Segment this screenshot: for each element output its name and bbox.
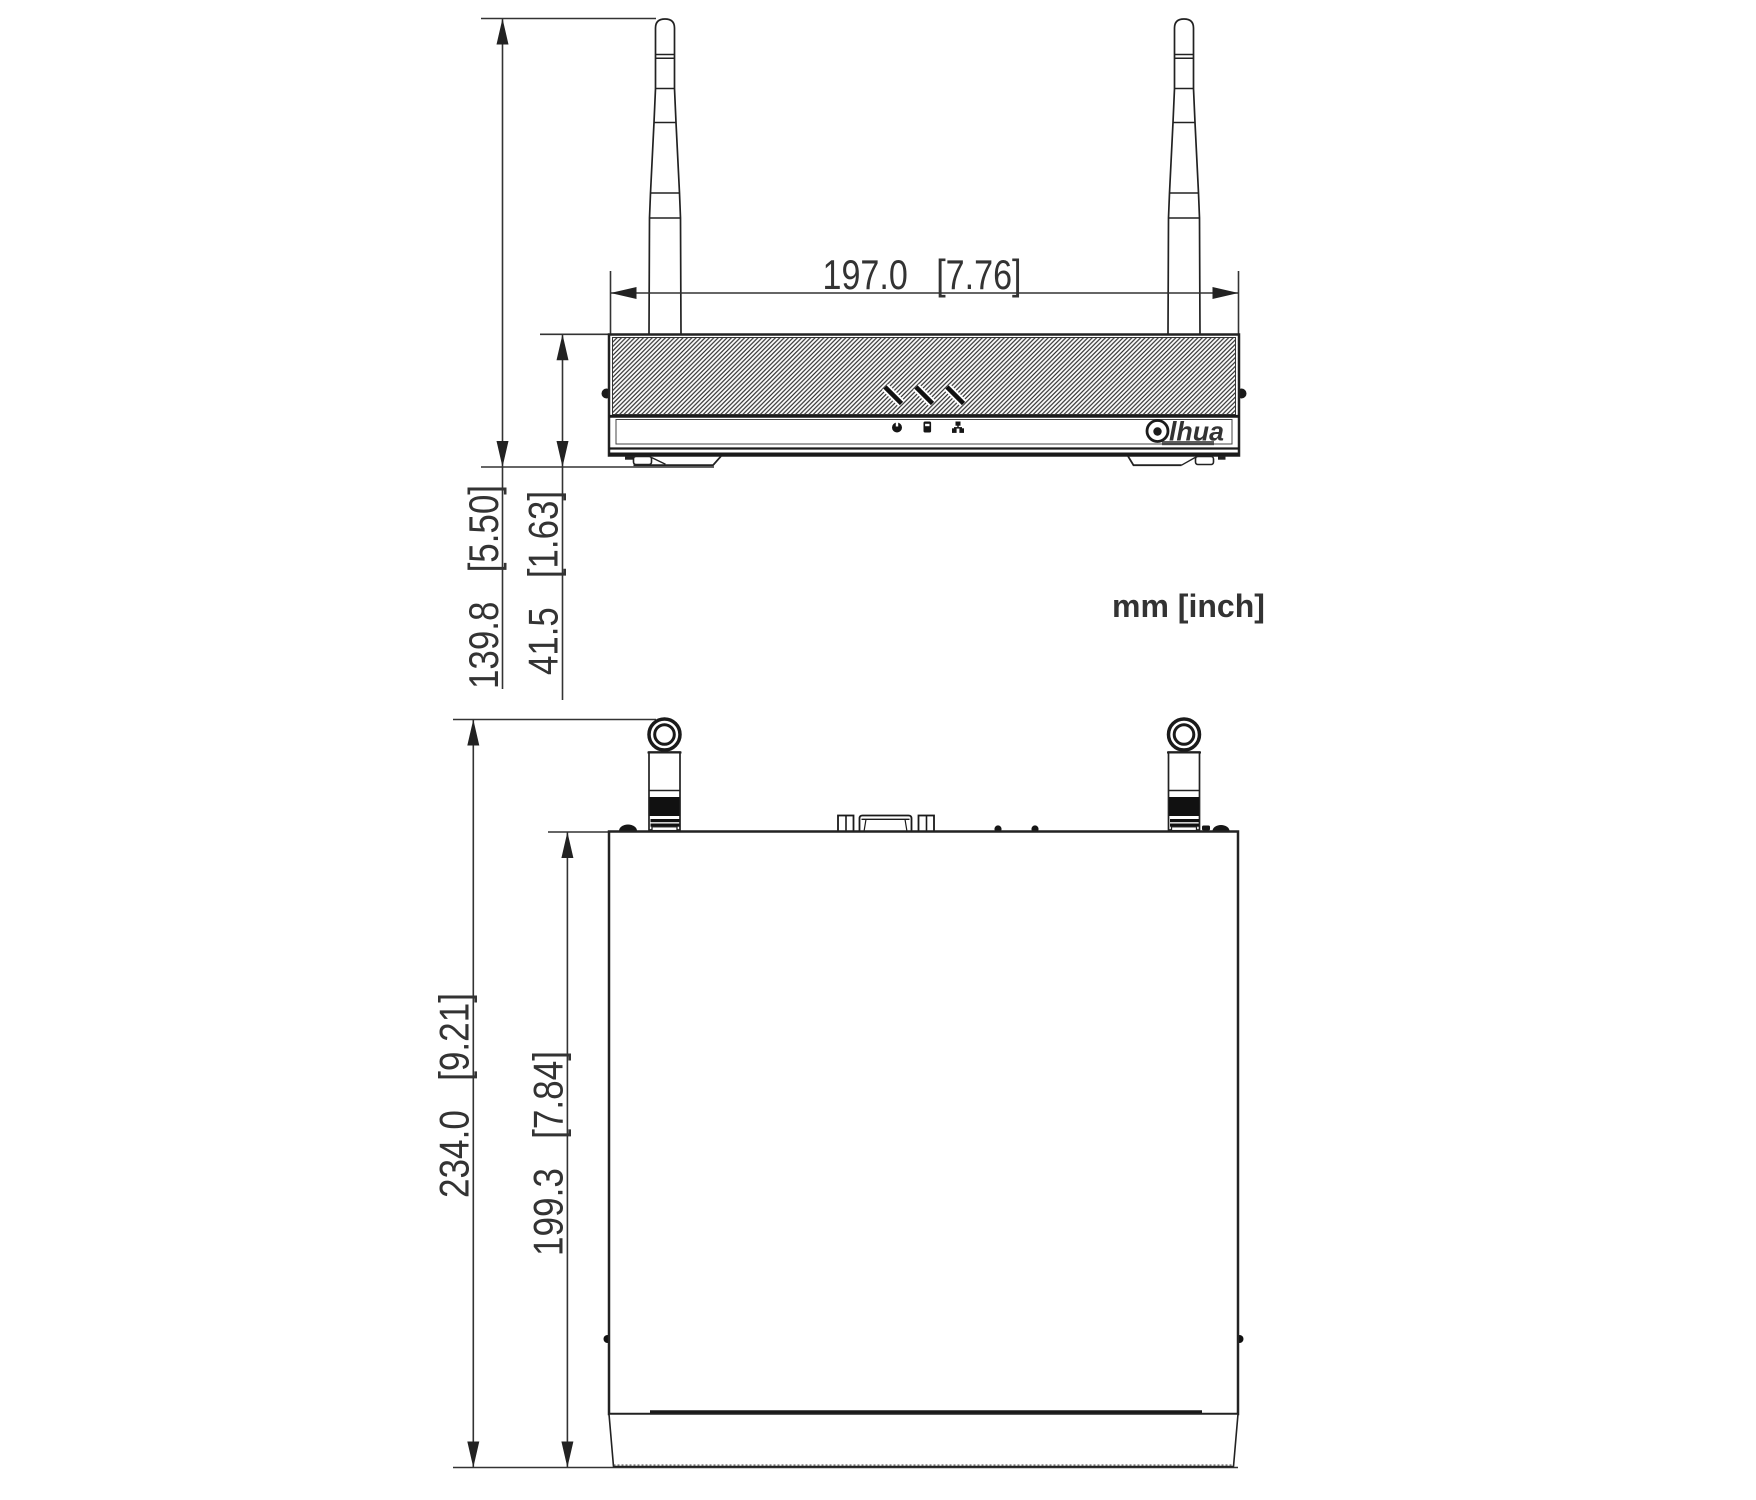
svg-text:234.0 [9.21]: 234.0 [9.21] (431, 993, 478, 1198)
svg-text:mm [inch]: mm [inch] (1112, 588, 1265, 624)
svg-text:41.5 [1.63]: 41.5 [1.63] (520, 491, 567, 675)
svg-text:139.8 [5.50]: 139.8 [5.50] (460, 485, 507, 689)
svg-text:197.0 [7.76]: 197.0 [7.76] (823, 251, 1022, 298)
svg-text:199.3 [7.84]: 199.3 [7.84] (525, 1051, 572, 1256)
